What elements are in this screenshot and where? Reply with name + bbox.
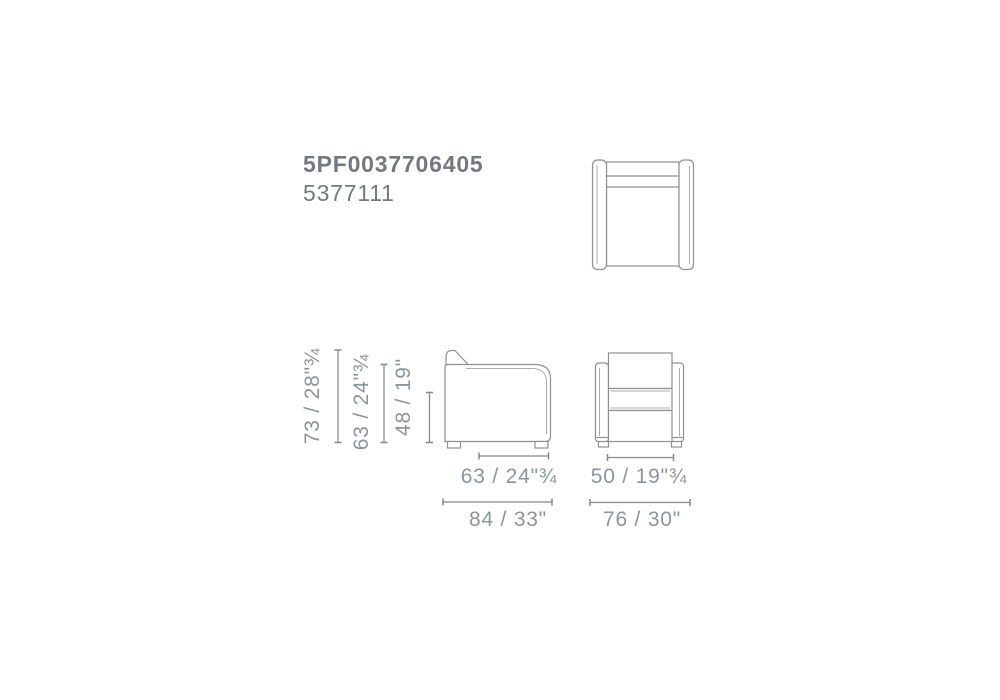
side-view-body: [445, 365, 551, 442]
armchair-top-view-icon: [593, 160, 694, 270]
side-view-back-foot: [448, 442, 461, 449]
dimension-line-seat-width: [608, 454, 674, 461]
dimension-line-seat-depth: [479, 453, 549, 460]
dimension-line-arm-height: [381, 365, 388, 443]
armchair-side-view-icon: [445, 351, 551, 449]
top-view-right-armrest: [679, 160, 694, 270]
front-view-left-armrest: [596, 363, 609, 442]
dimension-label-total-width: 76 / 30": [603, 509, 681, 531]
dimension-label-total-depth: 84 / 33": [469, 509, 547, 531]
dimension-line-seat-height: [426, 393, 433, 443]
front-view-right-foot: [672, 442, 682, 448]
dimension-line-height-total: [335, 350, 342, 443]
dimension-label-seat-depth: 63 / 24"¾: [461, 466, 557, 488]
technical-drawing: [0, 0, 1000, 700]
front-view-seat-cushion: [609, 389, 673, 411]
top-view-left-armrest: [593, 160, 607, 270]
dimension-label-arm-height: 63 / 24"¾: [351, 354, 373, 450]
spec-sheet-page: 5PF0037706405 5377111: [0, 0, 1000, 700]
dimension-label-height-total: 73 / 28"¾: [302, 348, 324, 444]
dimension-line-total-width: [590, 499, 690, 506]
front-view-base: [609, 411, 673, 442]
dimension-label-seat-width: 50 / 19"¾: [591, 466, 687, 488]
side-view-front-foot: [535, 442, 548, 449]
dimension-label-seat-height: 48 / 19": [393, 358, 415, 436]
armchair-front-view-icon: [596, 353, 684, 447]
front-view-left-foot: [599, 442, 609, 448]
dimension-line-total-depth: [443, 499, 552, 506]
front-view-backrest: [609, 353, 673, 389]
side-view-backrest-top: [446, 351, 468, 367]
top-view-seat-area: [607, 162, 680, 266]
